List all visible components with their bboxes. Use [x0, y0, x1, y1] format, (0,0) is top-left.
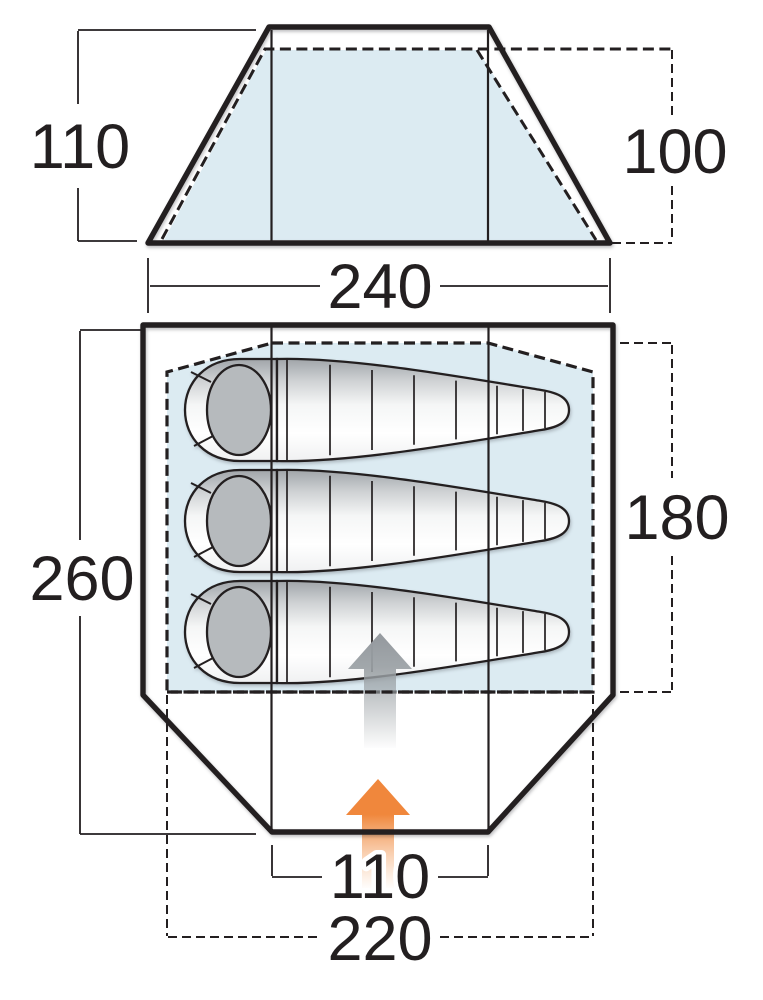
- dimension-door-width: 110: [272, 842, 488, 912]
- tent-diagram-canvas: 110 100 240 260: [0, 0, 763, 1000]
- dimension-label-inner-length: 180: [624, 483, 729, 553]
- dimension-front-width: 240: [148, 252, 610, 322]
- dimension-label-front-inner-height: 100: [622, 117, 727, 187]
- dimension-label-door-width: 110: [330, 842, 430, 912]
- floor-plan: 260 180 110 220: [29, 325, 729, 974]
- front-inner-fill: [164, 50, 596, 240]
- dimension-label-inner-width: 220: [327, 904, 432, 974]
- dimension-label-plan-length: 260: [29, 544, 134, 614]
- dimension-label-front-width: 240: [327, 252, 432, 322]
- tent-dimension-diagram: 110 100 240 260: [0, 0, 763, 1000]
- front-view: 110 100 240: [30, 27, 728, 322]
- dimension-inner-length: 180: [620, 343, 730, 692]
- dimension-label-front-height: 110: [30, 112, 130, 182]
- dimension-front-inner-height: 100: [622, 50, 727, 242]
